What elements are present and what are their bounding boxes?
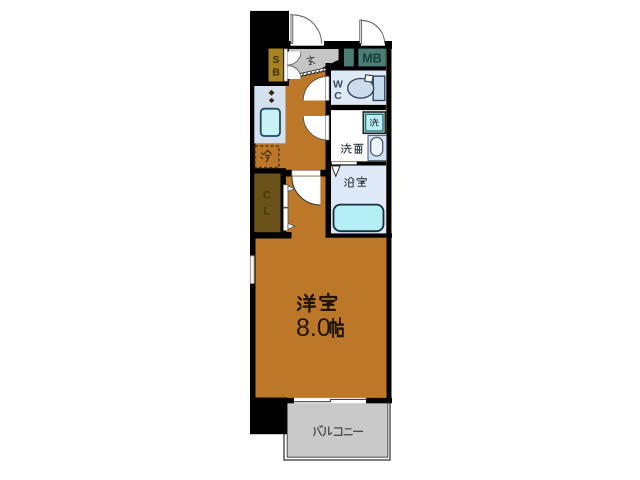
svg-text:W: W <box>333 79 343 91</box>
svg-text:B: B <box>272 67 280 79</box>
svg-text:C: C <box>334 90 342 102</box>
svg-text:MB: MB <box>362 51 381 65</box>
svg-text:L: L <box>264 206 271 218</box>
svg-text:S: S <box>272 54 279 66</box>
svg-text:8.0: 8.0 <box>296 314 331 342</box>
svg-text:C: C <box>263 190 271 202</box>
